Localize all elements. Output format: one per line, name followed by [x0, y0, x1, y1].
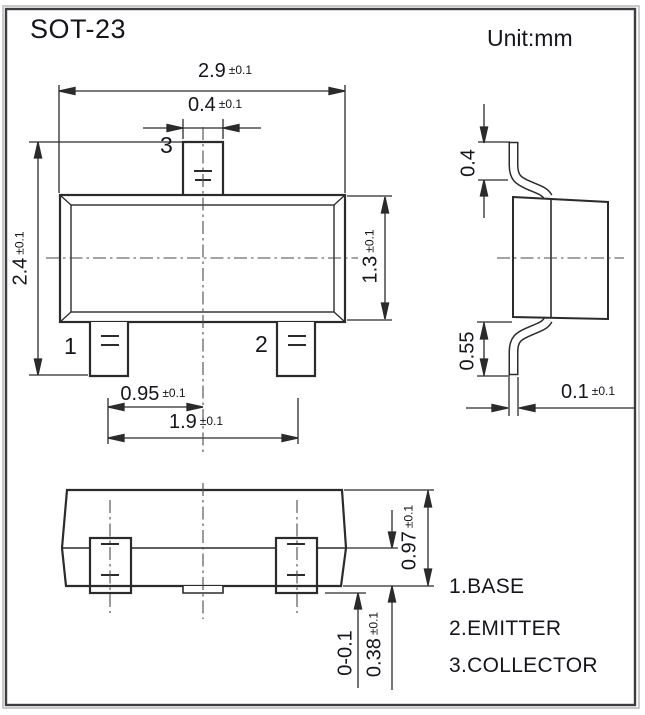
- legend-pin1-base: 1.BASE: [449, 575, 524, 599]
- legend-pin2-emitter: 2.EMITTER: [449, 617, 561, 641]
- dim-standoff: 0-0.1: [335, 612, 358, 692]
- dim-lead-height: 0.38±0.1: [364, 597, 387, 693]
- pin-label-emitter: 2: [255, 331, 268, 358]
- dim-body-thickness: 0.97±0.1: [399, 490, 422, 586]
- dim-pin-pitch: 0.95±0.1: [98, 383, 208, 406]
- package-outline-drawing: [0, 0, 645, 715]
- dim-lead-top-length: 0.4: [458, 139, 481, 185]
- datasheet-page: SOT-23 Unit:mm 2.9±0.1 0.4±0.1 2.4±0.1 1…: [0, 0, 645, 715]
- pin-label-base: 1: [64, 333, 77, 360]
- dim-body-width: 2.9±0.1: [145, 60, 305, 83]
- dim-body-height: 1.3±0.1: [360, 202, 383, 312]
- dim-pin-width: 0.4±0.1: [135, 94, 295, 117]
- dim-lead-thickness: 0.1±0.1: [528, 381, 645, 404]
- dim-total-height: 2.4±0.1: [10, 199, 33, 319]
- dim-pin-span: 1.9±0.1: [126, 411, 266, 434]
- page-title: SOT-23: [30, 14, 126, 45]
- dim-lead-bottom-length: 0.55: [457, 322, 480, 378]
- pin-label-collector: 3: [160, 132, 173, 159]
- legend-pin3-collector: 3.COLLECTOR: [449, 654, 598, 678]
- unit-label: Unit:mm: [487, 25, 573, 52]
